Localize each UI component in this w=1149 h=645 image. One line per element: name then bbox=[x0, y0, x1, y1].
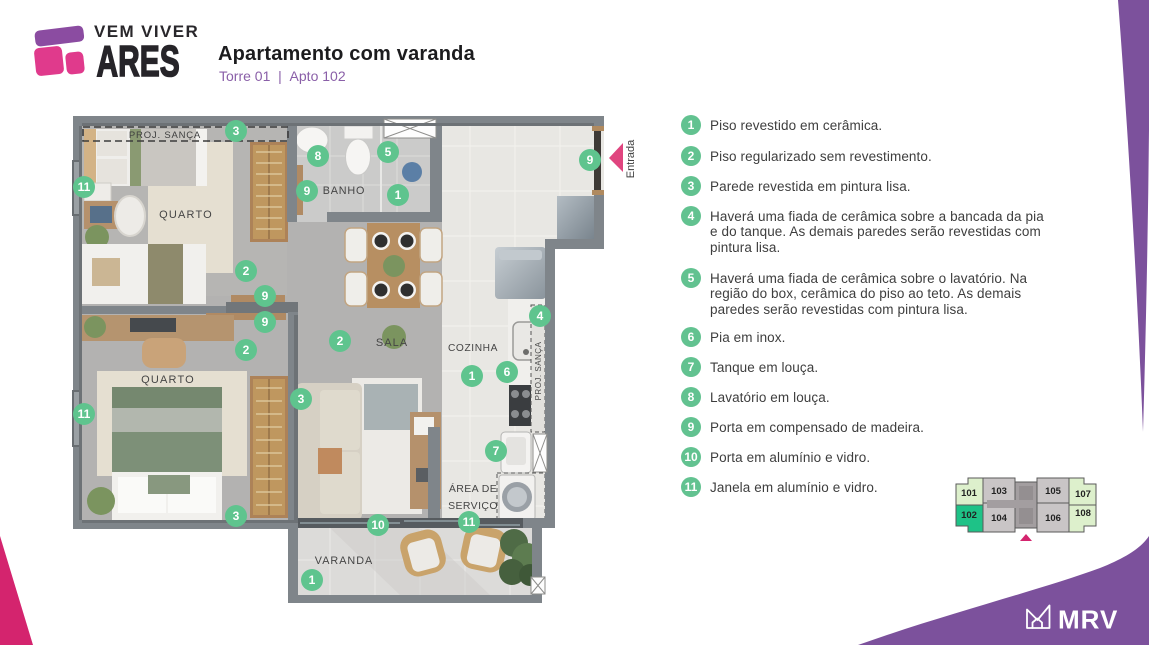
svg-text:MRV: MRV bbox=[1058, 605, 1118, 635]
